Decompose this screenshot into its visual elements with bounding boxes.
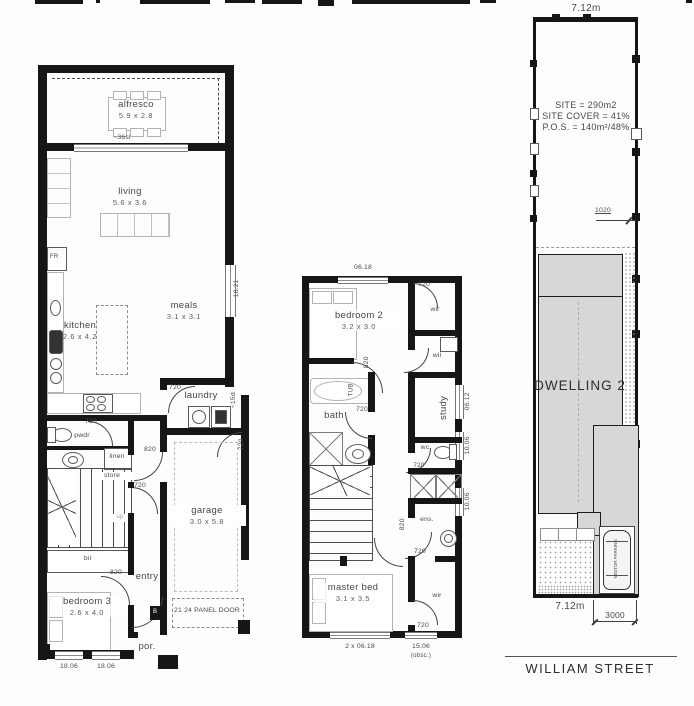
door-label-hall: 820	[138, 446, 162, 454]
site-dim-1020: 1020	[588, 207, 618, 215]
site-stat-pos: P.O.S. = 140m²/48%	[536, 122, 636, 133]
room-label-study: study	[438, 388, 450, 428]
room-label-bir: bir	[70, 555, 106, 563]
room-label-living: living 5.6 x 3.6	[90, 186, 170, 207]
door-label-garage-side: 720	[238, 433, 246, 455]
visitor-parking-label: VISITOR PARKING	[613, 536, 619, 582]
window-label-master-bottom: 2 x 06.18	[330, 643, 390, 651]
site-dim-bottom: 7.12m	[544, 601, 596, 614]
room-label-linen: linen	[104, 453, 130, 461]
window-label-wir2-note: (obsc.)	[403, 653, 439, 661]
street-label: WILLIAM STREET	[510, 661, 670, 677]
door-label-wir: 720	[413, 281, 435, 289]
room-label-bath: bath	[312, 410, 356, 422]
room-label-laundry: laundry	[168, 390, 234, 402]
door-label-pwdr: 720	[80, 418, 102, 426]
window-label-bed3-right: 18.06	[92, 663, 120, 671]
window-study	[455, 385, 464, 419]
room-label-ens: ens.	[412, 516, 442, 524]
door-label-bed2: 820	[363, 351, 371, 373]
room-label-pwdr: pwdr	[62, 432, 102, 440]
window-label-study: 06.12	[464, 388, 472, 414]
meter-box: B	[150, 606, 162, 620]
room-label-wir: wir	[420, 306, 450, 314]
site-stat-area: SITE = 290m2	[536, 100, 636, 111]
site-stat-cover: SITE COVER = 41%	[536, 111, 636, 122]
room-label-alfresco: alfresco 5.9 x 2.8	[95, 99, 177, 120]
window-master-bottom	[330, 632, 390, 639]
floor-plan-sheet: alfresco 5.9 x 2.8 ~36sl 18.21 ~15d livi…	[0, 0, 694, 706]
window-label-18-21: 18.21	[233, 275, 241, 301]
room-label-wir2: wir	[422, 592, 452, 600]
room-label-wc: wc	[414, 444, 436, 452]
room-label-kitchen: kitchen 2.6 x 4.2	[42, 320, 118, 341]
room-label-wil: wil	[422, 352, 452, 360]
site-dim-3000: 3000	[598, 610, 632, 621]
visitor-car: VISITOR PARKING	[603, 530, 631, 590]
window-bed3-right	[92, 651, 120, 660]
window-label-wir2-bottom: 15.06	[405, 643, 437, 651]
room-label-bedroom3: bedroom 3 2.6 x 4.0	[48, 596, 126, 617]
room-label-bedroom2: bedroom 2 3.2 x 3.0	[320, 310, 398, 331]
room-label-master: master bed 3.1 x 3.5	[314, 582, 392, 603]
dwelling-label: DWELLING 2	[528, 378, 632, 395]
garage-door-note: 21 24 PANEL DOOR	[172, 607, 242, 615]
shower	[309, 432, 343, 466]
window-label-ens: 10.06	[464, 488, 472, 514]
room-label-garage: garage 3.0 x 5.8	[168, 505, 246, 526]
window-label-bed3-left: 18.06	[55, 663, 83, 671]
window-wir2-bottom	[405, 632, 437, 639]
door-label-master: 820	[399, 513, 407, 535]
window-label-alfresco-slider: ~36sl	[100, 134, 144, 142]
door-label-wir2: 720	[412, 622, 434, 630]
window-bed3-left	[55, 651, 83, 660]
room-label-store: store	[92, 472, 132, 480]
room-label-meals: meals 3.1 x 3.1	[148, 300, 220, 321]
room-label-entry: entry	[122, 571, 172, 583]
window-label-top: 06.18	[340, 264, 386, 272]
fridge: FR	[47, 247, 67, 271]
tub-label: TUB	[348, 382, 356, 398]
dwelling-rear-block	[538, 254, 623, 298]
window-label-wc: 10.06	[464, 432, 472, 458]
window-bed2-top	[338, 277, 388, 284]
